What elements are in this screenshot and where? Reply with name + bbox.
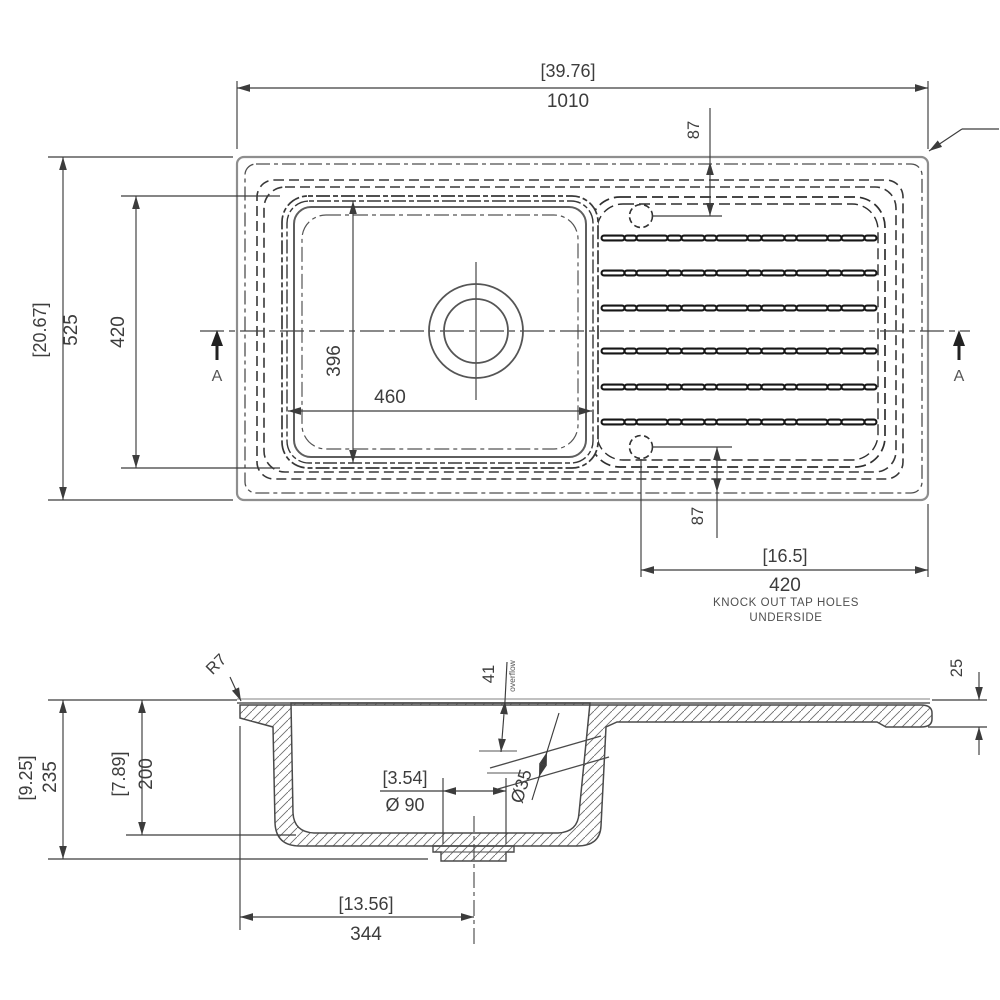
dim-overall-depth-mm: 525 xyxy=(61,314,82,346)
dim-corner-radius: R7 xyxy=(203,651,241,701)
dim-bowl-length: 420 xyxy=(108,196,280,468)
dim-tap-span-inches: [16.5] xyxy=(762,546,807,566)
plan-sink-outlines xyxy=(237,157,928,500)
tap-note-line2: UNDERSIDE xyxy=(749,612,822,624)
section-arrow-left xyxy=(211,330,223,346)
section-arrow-right xyxy=(953,330,965,346)
dim-waste-dia-inches: [3.54] xyxy=(382,768,427,788)
dim-overflow-offset-mm: 41 xyxy=(480,665,498,683)
dim-edge-thickness-mm: 25 xyxy=(948,659,966,677)
section-marker-right: A xyxy=(953,330,965,385)
dim-corner-radius-value: R7 xyxy=(203,651,231,679)
dim-tap-offset-top: 87 xyxy=(685,108,710,216)
dim-tap-offset-bottom-mm: 87 xyxy=(689,507,707,525)
tap-note-line1: KNOCK OUT TAP HOLES xyxy=(713,597,859,609)
bowl-rim-outer xyxy=(282,196,598,468)
dim-overall-width-mm: 1010 xyxy=(547,91,589,112)
sink-technical-drawing: A A [39.76] 1010 [20.67] 525 xyxy=(0,0,1000,1000)
dim-overall-width: [39.76] 1010 xyxy=(237,61,928,149)
tap-hole-top xyxy=(630,205,653,228)
section-material xyxy=(240,703,932,846)
dim-tap-span: [16.5] 420 KNOCK OUT TAP HOLES UNDERSIDE xyxy=(641,459,928,624)
dim-tap-span-mm: 420 xyxy=(769,575,801,596)
dim-bowl-depth-mm: 200 xyxy=(136,758,157,790)
plan-view: A A [39.76] 1010 [20.67] 525 xyxy=(30,61,999,624)
overflow-label: overflow xyxy=(507,659,517,692)
section-marker-left: A xyxy=(211,330,223,385)
dim-waste-centre-inches: [13.56] xyxy=(338,894,393,914)
dim-bowl-inner-length-mm: 396 xyxy=(324,345,345,377)
dim-edge-thickness: 25 xyxy=(928,659,987,755)
dim-waste-dia-mm: Ø 90 xyxy=(385,795,424,815)
dim-tap-offset-top-mm: 87 xyxy=(685,121,703,139)
dim-bowl-depth-inches: [7.89] xyxy=(109,751,129,796)
dim-bowl-length-mm: 420 xyxy=(108,316,129,348)
dim-overflow-dia: Ø35 xyxy=(507,713,559,805)
dim-overall-width-inches: [39.76] xyxy=(540,61,595,81)
dim-overall-depth-inches: [20.67] xyxy=(30,302,50,357)
sink-technical-drawing-page: A A [39.76] 1010 [20.67] 525 xyxy=(0,0,1000,1000)
dim-overall-height-mm: 235 xyxy=(40,761,61,793)
dim-bowl-inner-width-mm: 460 xyxy=(374,387,406,408)
section-label-right: A xyxy=(954,368,965,385)
dim-overall-height-inches: [9.25] xyxy=(16,755,36,800)
drainer-ribs xyxy=(604,238,874,422)
corner-leader xyxy=(929,129,999,151)
tap-hole-bottom xyxy=(630,436,653,459)
section-label-left: A xyxy=(212,368,223,385)
dim-overall-depth: [20.67] 525 xyxy=(30,157,233,500)
section-view: 41 overflow Ø35 [3.54] Ø 90 [13.56] 344 xyxy=(16,651,987,945)
dim-waste-centre-mm: 344 xyxy=(350,924,382,945)
